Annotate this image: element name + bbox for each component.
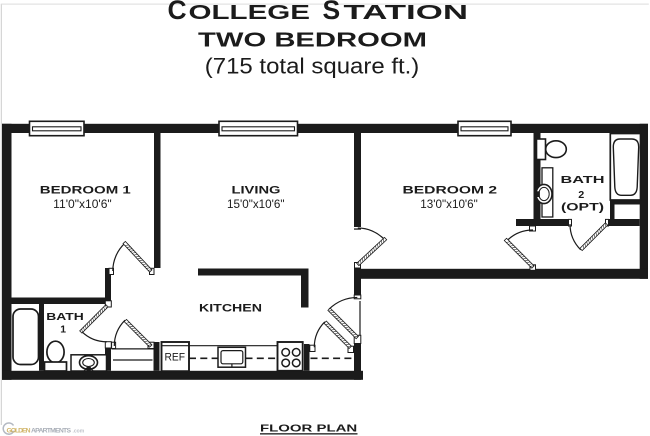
svg-text:GOLDEN: GOLDEN xyxy=(7,427,31,434)
svg-text:.com: .com xyxy=(73,428,85,434)
svg-text:APARTMENTS: APARTMENTS xyxy=(31,427,71,434)
